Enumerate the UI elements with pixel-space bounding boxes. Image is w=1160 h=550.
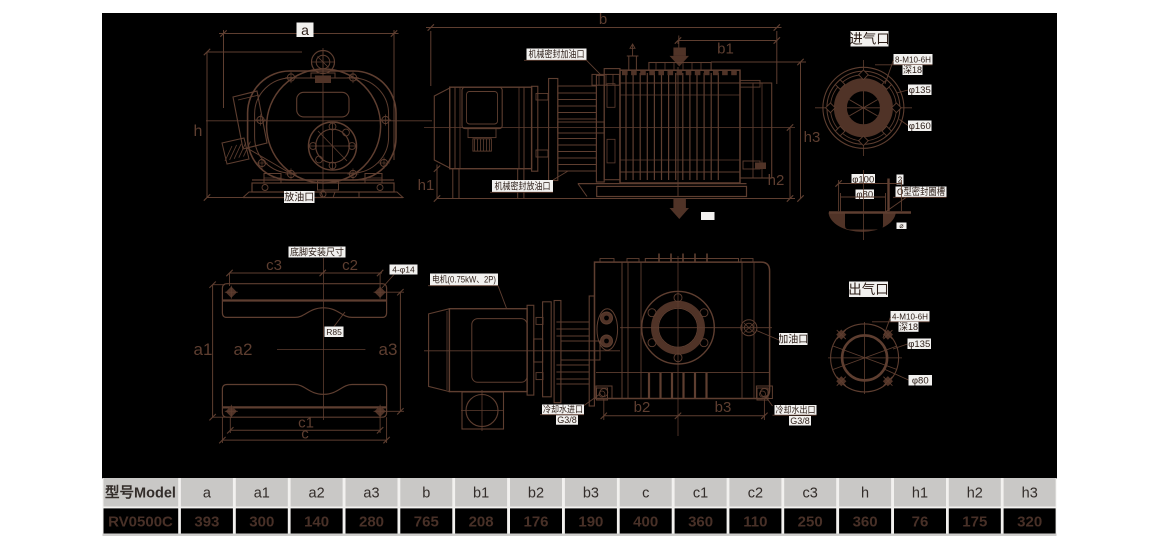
svg-text:76: 76 xyxy=(912,514,929,531)
svg-text:底脚安装尺寸: 底脚安装尺寸 xyxy=(290,246,344,258)
svg-text:400: 400 xyxy=(633,514,658,531)
svg-text:c2: c2 xyxy=(342,257,358,274)
svg-text:电机(0.75kW、2P): 电机(0.75kW、2P) xyxy=(432,274,496,285)
svg-text:b: b xyxy=(599,11,607,28)
svg-text:b3: b3 xyxy=(715,399,732,416)
svg-text:250: 250 xyxy=(798,514,823,531)
svg-text:b3: b3 xyxy=(583,486,599,502)
svg-text:a2: a2 xyxy=(234,340,253,359)
svg-text:冷却水出口: 冷却水出口 xyxy=(776,404,816,415)
svg-text:b: b xyxy=(422,486,430,502)
svg-text:320: 320 xyxy=(1017,514,1042,531)
svg-text:360: 360 xyxy=(853,514,878,531)
svg-text:a3: a3 xyxy=(363,486,379,502)
svg-text:176: 176 xyxy=(523,514,548,531)
svg-text:进气口: 进气口 xyxy=(849,32,890,47)
svg-text:c: c xyxy=(642,486,649,502)
svg-text:O型密封圈槽: O型密封圈槽 xyxy=(897,186,945,198)
svg-text:a1: a1 xyxy=(254,486,270,502)
svg-text:c: c xyxy=(301,426,309,443)
svg-text:a2: a2 xyxy=(309,486,325,502)
svg-text:h3: h3 xyxy=(1022,486,1038,502)
svg-text:放油口: 放油口 xyxy=(284,191,314,204)
svg-text:φ135: φ135 xyxy=(909,85,931,96)
svg-text:c2: c2 xyxy=(748,486,763,502)
svg-text:393: 393 xyxy=(194,514,219,531)
svg-text:φ80: φ80 xyxy=(856,190,873,201)
svg-text:φ135: φ135 xyxy=(908,339,930,350)
svg-text:R85: R85 xyxy=(326,327,342,337)
svg-text:208: 208 xyxy=(469,514,494,531)
svg-text:机械密封加油口: 机械密封加油口 xyxy=(529,49,585,61)
svg-text:b2: b2 xyxy=(528,486,544,502)
svg-text:RV0500C: RV0500C xyxy=(108,514,173,531)
svg-text:φ160: φ160 xyxy=(909,121,931,132)
svg-text:190: 190 xyxy=(578,514,603,531)
svg-text:280: 280 xyxy=(359,514,384,531)
svg-text:h: h xyxy=(194,123,203,140)
svg-text:加油口: 加油口 xyxy=(778,333,808,346)
svg-text:b1: b1 xyxy=(717,41,734,58)
svg-text:765: 765 xyxy=(414,514,439,531)
svg-text:b1: b1 xyxy=(473,486,489,502)
svg-text:140: 140 xyxy=(304,514,329,531)
svg-text:4-M10-6H: 4-M10-6H xyxy=(892,311,928,321)
svg-text:300: 300 xyxy=(249,514,274,531)
svg-text:G3/8: G3/8 xyxy=(557,415,577,425)
svg-text:h2: h2 xyxy=(768,172,785,189)
svg-text:型号Model: 型号Model xyxy=(105,484,176,502)
svg-text:h: h xyxy=(861,486,869,502)
svg-text:360: 360 xyxy=(688,514,713,531)
svg-text:h1: h1 xyxy=(418,177,435,194)
svg-text:出气口: 出气口 xyxy=(848,282,889,297)
svg-text:4-φ14: 4-φ14 xyxy=(392,265,415,275)
svg-text:G3/8: G3/8 xyxy=(790,416,810,426)
svg-text:h2: h2 xyxy=(967,486,983,502)
svg-text:8-M10-6H: 8-M10-6H xyxy=(895,54,931,64)
svg-text:⌀: ⌀ xyxy=(899,223,903,230)
svg-text:a1: a1 xyxy=(194,340,213,359)
svg-text:深18: 深18 xyxy=(899,322,918,332)
svg-text:a3: a3 xyxy=(379,340,398,359)
svg-text:a: a xyxy=(203,486,212,502)
svg-text:b2: b2 xyxy=(634,399,651,416)
svg-text:a: a xyxy=(301,22,309,38)
svg-text:c1: c1 xyxy=(693,486,708,502)
svg-text:冷却水进口: 冷却水进口 xyxy=(543,404,583,415)
svg-text:机械密封放油口: 机械密封放油口 xyxy=(495,180,551,192)
svg-text:深18: 深18 xyxy=(903,65,922,75)
svg-text:c3: c3 xyxy=(266,257,282,274)
svg-text:c3: c3 xyxy=(803,486,818,502)
svg-text:175: 175 xyxy=(962,514,987,531)
svg-text:h1: h1 xyxy=(912,486,928,502)
svg-text:110: 110 xyxy=(743,514,767,531)
svg-text:φ80: φ80 xyxy=(912,376,929,387)
svg-text:h3: h3 xyxy=(804,129,821,146)
